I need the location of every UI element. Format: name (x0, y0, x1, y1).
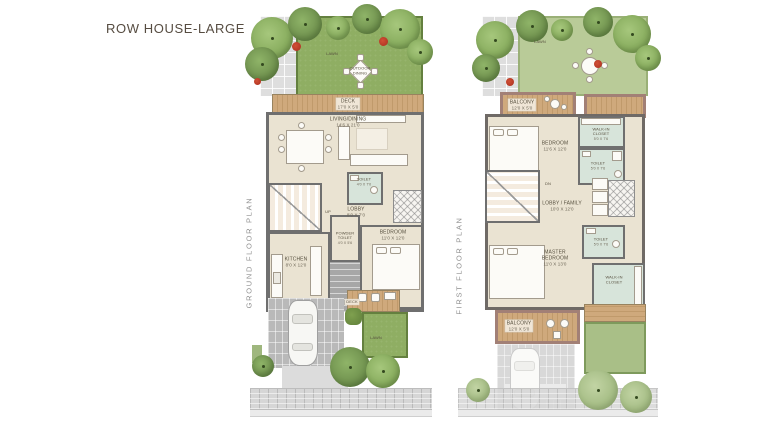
tree-icon (366, 354, 400, 388)
service-shaft (608, 180, 635, 217)
car-windshield-icon (514, 361, 535, 371)
outdoor-chair-icon (572, 62, 579, 69)
tree-icon (583, 7, 613, 37)
stair-direction-line (270, 185, 320, 230)
first-floor-plan: LAWN BALCONY12'0 X 5'0 BEDROOM11'6 X 12'… (462, 14, 640, 416)
tree-icon (288, 7, 322, 41)
balcony-chair-icon (561, 104, 567, 110)
outdoor-chair-icon (586, 76, 593, 83)
tree-icon (466, 378, 490, 402)
pillow-icon (390, 247, 401, 254)
pillow-icon (493, 129, 504, 136)
red-shrub-icon (292, 42, 301, 51)
tree-icon (326, 16, 350, 40)
tree-icon (516, 10, 548, 42)
dining-chair-icon (325, 146, 332, 153)
wc-icon (370, 186, 378, 194)
balcony-table-icon (550, 99, 560, 109)
deck-chair-icon (358, 293, 367, 302)
balcony-chair-icon (546, 319, 555, 328)
wardrobe-icon (581, 118, 621, 125)
tree-icon (578, 370, 618, 410)
rug-icon (356, 128, 388, 150)
tree-icon (352, 4, 382, 34)
red-shrub-icon (594, 60, 602, 68)
red-shrub-icon (254, 78, 261, 85)
outdoor-chair-icon (357, 82, 364, 89)
washbasin-icon (582, 151, 591, 157)
pillow-icon (507, 248, 518, 255)
outdoor-chair-icon (357, 54, 364, 61)
deck-chair-icon (371, 293, 380, 302)
tree-icon (245, 47, 279, 81)
tree-icon (476, 21, 514, 59)
wardrobe-icon (634, 266, 642, 306)
sofa-icon (350, 154, 408, 166)
red-shrub-icon (379, 37, 388, 46)
red-shrub-icon (506, 78, 514, 86)
balcony-chair-icon (560, 319, 569, 328)
wc-icon (612, 240, 620, 248)
terrace-deck (584, 304, 646, 322)
staircase (485, 170, 540, 223)
deck-table-icon (384, 292, 396, 300)
wardrobe-unit-icon (592, 204, 608, 216)
tree-icon (472, 54, 500, 82)
dining-chair-icon (298, 165, 305, 172)
ground-floor-plan: LAWN OUTDOOR DINING DECK17'0 X 5'0 LIVIN… (252, 14, 430, 416)
tree-icon (330, 347, 370, 387)
pillow-icon (493, 248, 504, 255)
wc-icon (614, 170, 622, 178)
page-title: ROW HOUSE-LARGE (106, 21, 245, 36)
staircase (268, 183, 322, 232)
dining-table-icon (286, 130, 324, 164)
wardrobe-unit-icon (592, 178, 608, 190)
outdoor-chair-icon (601, 62, 608, 69)
washbasin-icon (586, 228, 596, 234)
kitchen-sink-icon (273, 272, 281, 284)
dining-chair-icon (325, 134, 332, 141)
balcony-chair-icon (544, 96, 550, 102)
front-lawn (362, 312, 408, 358)
terrace-lawn (584, 322, 646, 374)
sofa-icon (338, 126, 350, 160)
outdoor-chair-icon (371, 68, 378, 75)
car-icon (288, 300, 318, 366)
stair-direction-line (487, 172, 538, 221)
sidewalk (250, 410, 432, 417)
bush-icon (345, 308, 362, 325)
outdoor-chair-icon (586, 48, 593, 55)
kitchen-island-icon (310, 246, 322, 296)
balcony-table-icon (553, 331, 561, 339)
pillow-icon (507, 129, 518, 136)
dining-chair-icon (298, 122, 305, 129)
pillow-icon (376, 247, 387, 254)
tree-icon (620, 381, 652, 413)
car-rear-window-icon (292, 343, 313, 351)
dining-chair-icon (278, 146, 285, 153)
row-house-floor-plan-sheet: ROW HOUSE-LARGE GROUND FLOOR PLAN LAWN O… (0, 0, 768, 425)
service-shaft (393, 190, 422, 223)
dining-chair-icon (278, 134, 285, 141)
car-windshield-icon (292, 314, 313, 324)
wardrobe-unit-icon (592, 191, 608, 203)
shower-icon (612, 151, 622, 161)
tree-icon (407, 39, 433, 65)
road (250, 388, 432, 410)
tree-icon (252, 355, 274, 377)
tree-icon (551, 19, 573, 41)
tree-icon (635, 45, 661, 71)
